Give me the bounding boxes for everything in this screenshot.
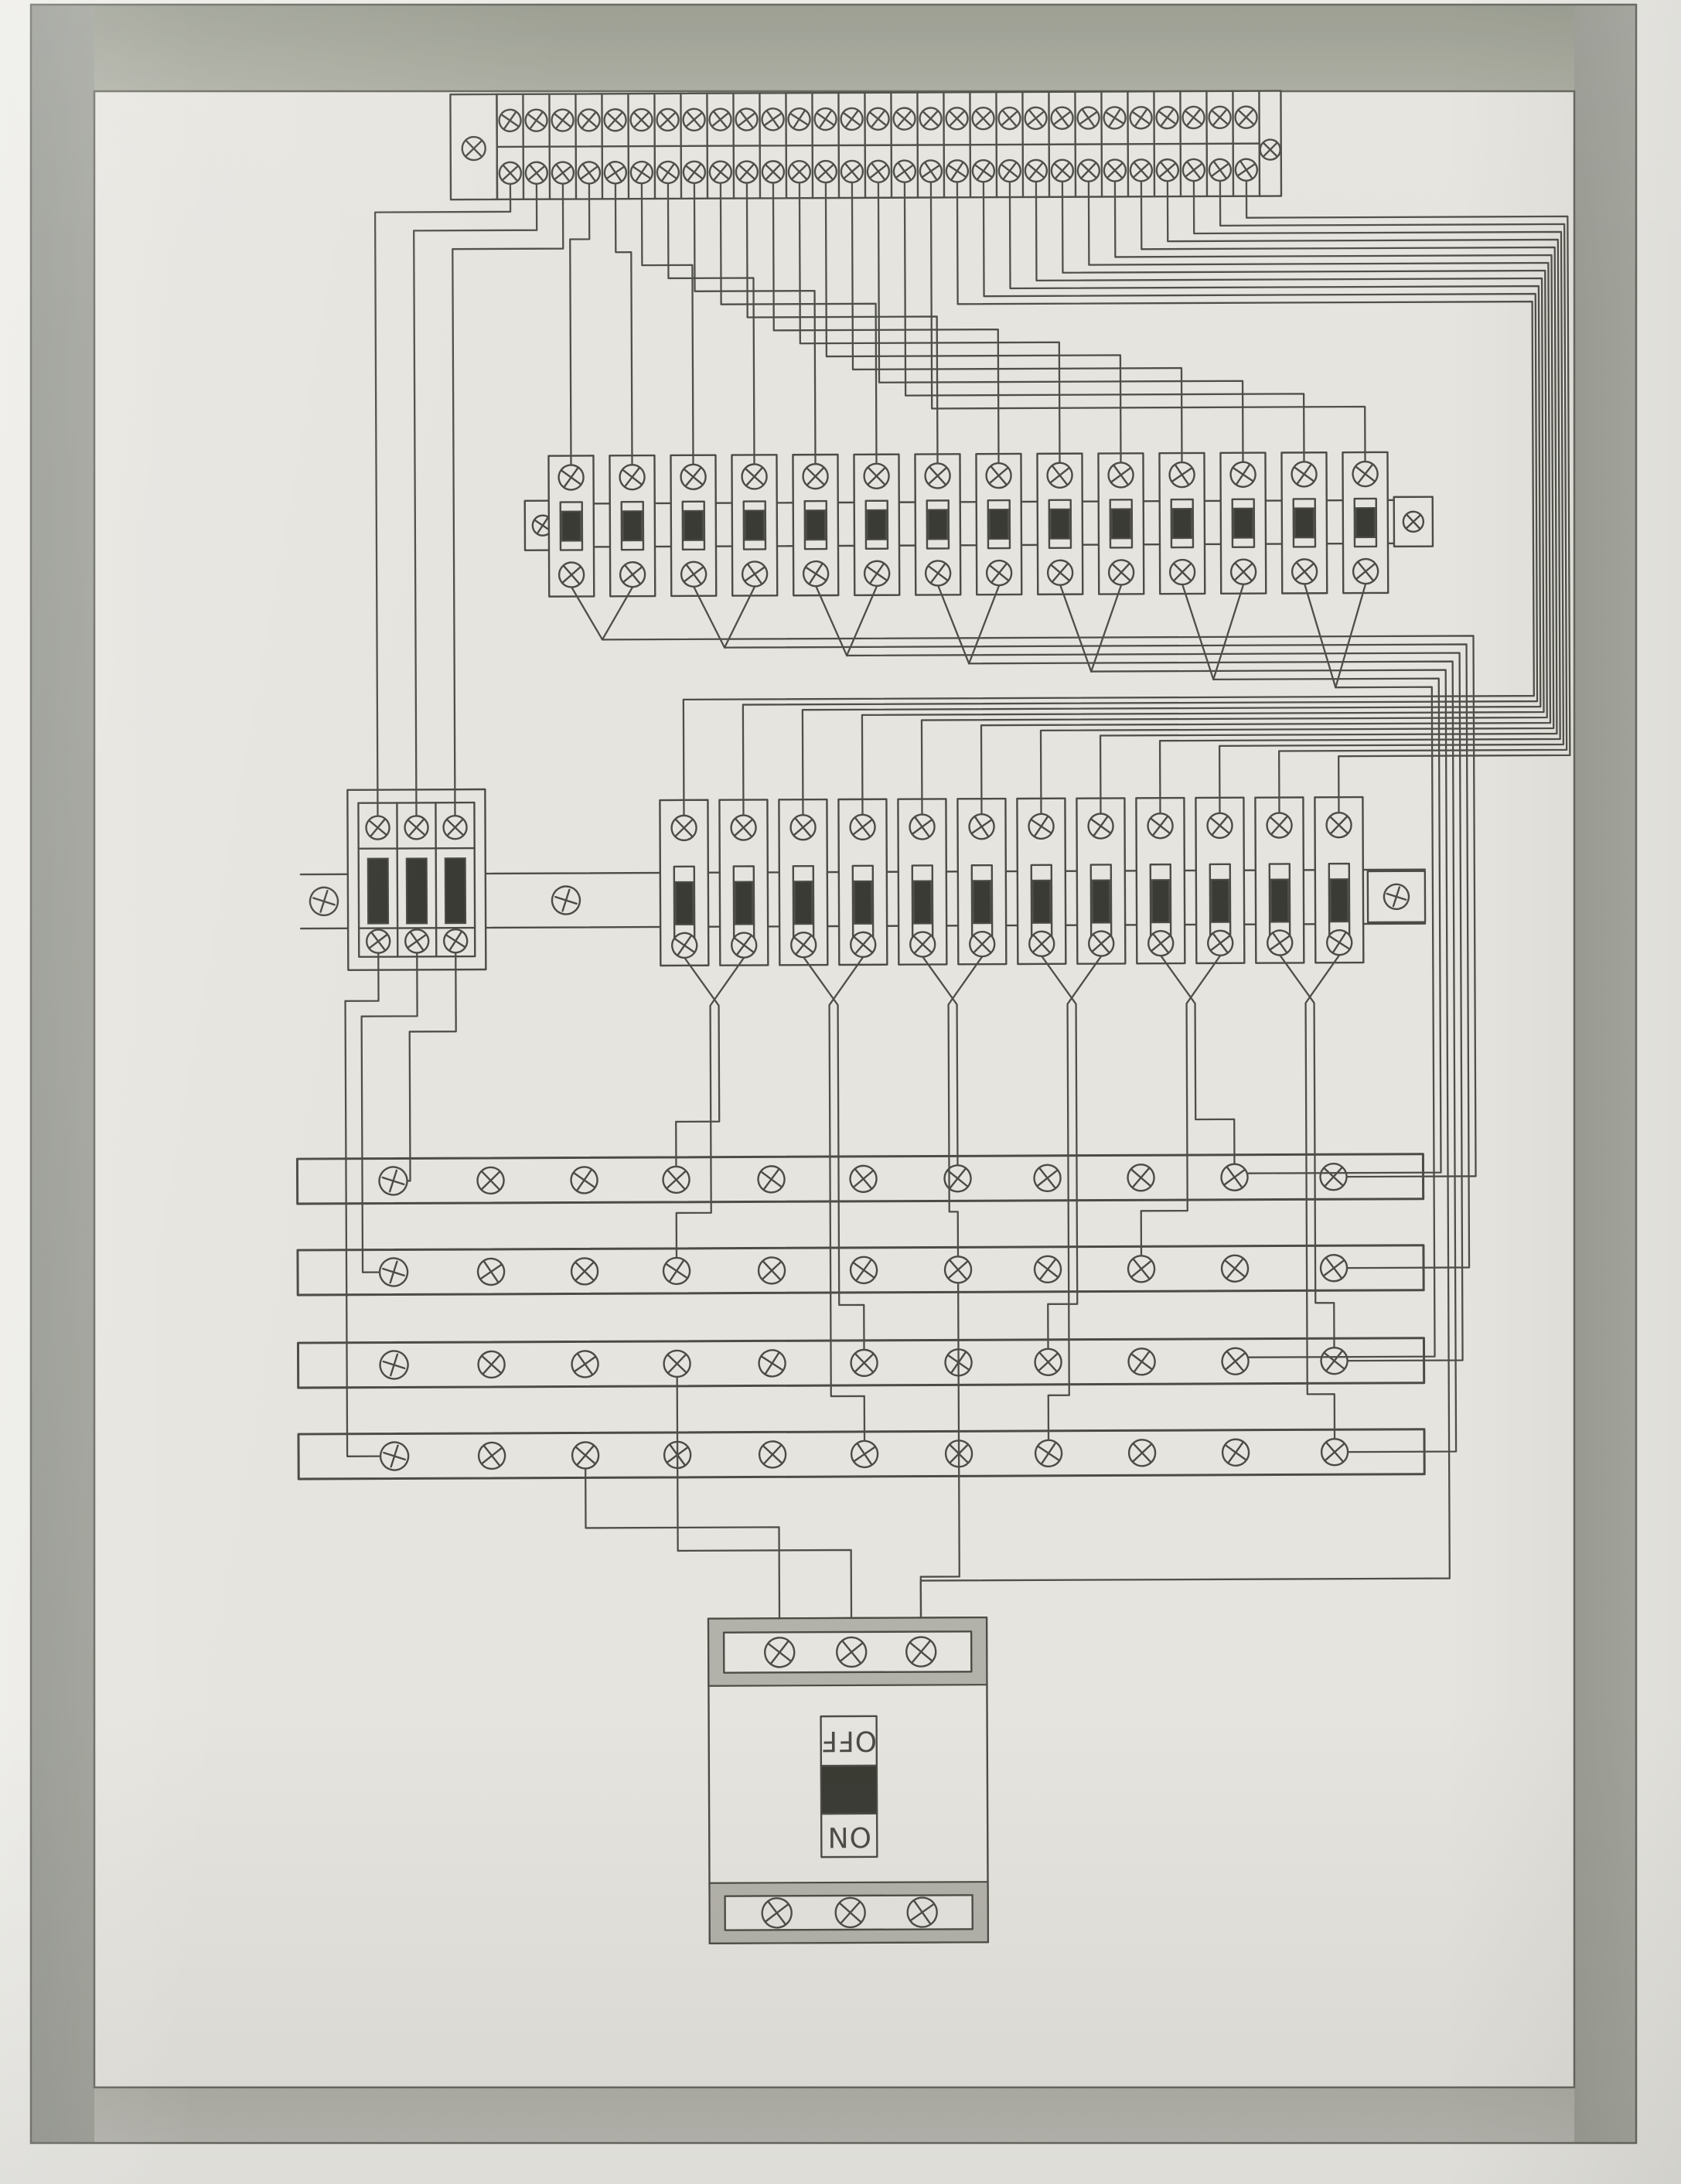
mcb-breaker xyxy=(1342,452,1388,593)
terminal-screw-icon xyxy=(1267,813,1293,839)
bus-bar xyxy=(298,1245,1424,1295)
bus-bar xyxy=(298,1429,1424,1479)
terminal-screw-icon xyxy=(759,1441,786,1468)
toggle-handle xyxy=(445,858,465,923)
strip-terminal-top xyxy=(604,109,626,131)
terminal-screw-icon xyxy=(803,464,828,489)
mcb-breaker xyxy=(1098,453,1144,594)
toggle-handle xyxy=(1212,880,1229,922)
three-pole-breaker xyxy=(347,789,486,970)
mcb-breaker xyxy=(1220,453,1266,594)
mcb-breaker xyxy=(976,454,1021,595)
terminal-screw-icon xyxy=(671,816,696,840)
toggle-handle xyxy=(1051,509,1069,539)
terminal-screw-icon xyxy=(404,816,429,840)
toggle-handle xyxy=(745,510,764,540)
mcb-breaker xyxy=(854,455,899,595)
mcb-breaker xyxy=(898,799,946,964)
mcb-breaker xyxy=(1017,799,1066,964)
terminal-screw-icon xyxy=(1047,560,1073,586)
terminal-screw-icon xyxy=(925,463,950,489)
strip-terminal-bottom xyxy=(525,162,548,185)
mcb-breaker xyxy=(660,800,708,966)
terminal-screw-icon xyxy=(443,816,467,840)
strip-terminal-bottom xyxy=(762,161,785,183)
breaker-on-label: ON xyxy=(827,1821,871,1852)
terminal-screw-icon xyxy=(558,561,585,588)
terminal-screw-icon xyxy=(985,462,1012,489)
mcb-breaker xyxy=(1159,453,1205,594)
strip-terminal-bottom xyxy=(1156,158,1179,182)
toggle-handle xyxy=(1356,508,1375,537)
toggle-handle xyxy=(795,881,812,924)
toggle-handle xyxy=(854,881,871,924)
strip-terminal-bottom xyxy=(1078,159,1100,182)
toggle-handle xyxy=(990,509,1008,539)
terminal-screw-icon xyxy=(1403,511,1424,532)
toggle-handle xyxy=(1152,880,1169,922)
mcb-breaker xyxy=(957,799,1006,964)
main-breaker: OFFON xyxy=(708,1617,988,1944)
toggle-handle xyxy=(1271,879,1288,922)
strip-end-terminal-left xyxy=(462,137,486,160)
terminal-screw-icon xyxy=(835,1897,866,1928)
wiring-diagram: OFFON xyxy=(0,0,1681,2184)
terminal-screw-icon xyxy=(571,1258,598,1284)
terminal-screw-icon xyxy=(663,1166,690,1194)
mcb-breaker xyxy=(1136,798,1185,963)
strip-terminal-top xyxy=(972,107,994,130)
terminal-screw-icon xyxy=(1321,1438,1349,1466)
photo-of-wiring-diagram: OFFON xyxy=(0,0,1681,2184)
toggle-handle xyxy=(1234,509,1253,538)
mcb-breaker xyxy=(1037,454,1083,595)
terminal-screw-icon xyxy=(970,932,994,956)
mcb-breaker xyxy=(731,455,777,595)
terminal-screw-icon xyxy=(742,464,768,490)
strip-terminal-bottom xyxy=(499,162,521,184)
mcb-breaker xyxy=(1255,797,1304,963)
strip-terminal-bottom xyxy=(1051,159,1074,182)
mcb-breaker xyxy=(793,455,838,595)
terminal-screw-icon xyxy=(478,1351,506,1378)
strip-end-terminal-right xyxy=(1260,140,1280,160)
toggle-handle xyxy=(1093,880,1110,922)
terminal-screw-icon xyxy=(1109,560,1134,585)
terminal-screw-icon xyxy=(851,1350,877,1376)
terminal-screw-icon xyxy=(759,1257,786,1284)
strip-terminal-bottom xyxy=(709,160,732,183)
top-terminal-strip xyxy=(450,91,1281,200)
toggle-handle xyxy=(676,882,693,925)
toggle-handle xyxy=(806,510,825,540)
mcb-breaker xyxy=(719,799,768,965)
terminal-screw-icon xyxy=(1291,558,1318,584)
toggle-handle xyxy=(407,858,427,923)
mcb-breaker xyxy=(1076,798,1125,963)
toggle-handle xyxy=(684,511,703,540)
mcb-breaker xyxy=(1314,797,1363,963)
terminal-screw-icon xyxy=(477,1167,503,1194)
toggle-handle xyxy=(1033,881,1050,923)
strip-terminal-top xyxy=(631,109,653,131)
mcb-breaker xyxy=(915,454,960,595)
mcb-breaker xyxy=(548,455,594,596)
bus-bar xyxy=(297,1154,1423,1204)
mcb-breaker xyxy=(1281,452,1327,593)
strip-terminal-top xyxy=(656,109,679,131)
terminal-screw-icon xyxy=(731,815,756,840)
strip-terminal-top xyxy=(919,107,942,130)
toggle-handle xyxy=(368,859,388,924)
terminal-screw-icon xyxy=(910,932,936,957)
mcb-breaker xyxy=(779,799,827,965)
toggle-handle xyxy=(914,881,931,923)
strip-terminal-bottom xyxy=(1130,159,1152,182)
strip-terminal-top xyxy=(946,107,968,129)
strip-terminal-top xyxy=(1024,107,1048,131)
mcb-breaker xyxy=(670,455,716,596)
terminal-screw-icon xyxy=(849,1165,878,1194)
strip-terminal-top xyxy=(1235,106,1257,128)
terminal-screw-icon xyxy=(1170,560,1195,584)
terminal-screw-icon xyxy=(944,1256,972,1283)
bus-bar xyxy=(298,1338,1424,1388)
toggle-handle xyxy=(1295,508,1314,537)
strip-terminal-top xyxy=(683,108,706,131)
strip-terminal-top xyxy=(1209,106,1232,129)
terminal-screw-icon xyxy=(789,814,817,841)
terminal-screw-icon xyxy=(1127,1164,1154,1191)
terminal-screw-icon xyxy=(571,1441,599,1469)
terminal-screw-icon xyxy=(1231,559,1256,584)
terminal-screw-icon xyxy=(663,1351,690,1378)
strip-terminal-bottom xyxy=(840,160,864,183)
mcb-breaker xyxy=(838,799,887,965)
terminal-screw-icon xyxy=(1029,931,1055,956)
strip-terminal-bottom xyxy=(1025,159,1048,182)
toggle-handle xyxy=(929,509,947,539)
breaker-off-label: OFF xyxy=(820,1725,877,1756)
strip-terminal-bottom xyxy=(1104,159,1126,181)
terminal-screw-icon xyxy=(1326,813,1352,838)
toggle-handle xyxy=(868,510,886,540)
terminal-screw-icon xyxy=(864,464,888,489)
mccb-toggle-handle xyxy=(821,1766,877,1814)
mcb-breaker xyxy=(609,455,655,596)
strip-terminal-bottom xyxy=(789,161,810,182)
strip-terminal-top xyxy=(998,107,1021,130)
terminal-screw-icon xyxy=(1221,1347,1250,1375)
mcb-breaker xyxy=(1195,798,1244,963)
toggle-handle xyxy=(1173,509,1192,538)
toggle-handle xyxy=(973,881,991,923)
toggle-handle xyxy=(623,511,642,540)
terminal-screw-icon xyxy=(1320,1164,1347,1191)
strip-terminal-bottom xyxy=(814,160,837,182)
terminal-screw-icon xyxy=(1129,1440,1156,1467)
strip-terminal-top xyxy=(578,108,601,131)
terminal-screw-icon xyxy=(365,815,390,840)
terminal-screw-icon xyxy=(1088,931,1114,957)
toggle-handle xyxy=(1112,509,1130,538)
toggle-handle xyxy=(735,881,752,924)
terminal-screw-icon xyxy=(1035,1348,1062,1376)
strip-terminal-bottom xyxy=(735,161,759,184)
strip-terminal-top xyxy=(893,107,916,131)
strip-terminal-top xyxy=(708,107,732,131)
terminal-screw-icon xyxy=(850,932,876,958)
toggle-handle xyxy=(562,511,581,540)
toggle-handle xyxy=(1331,879,1348,922)
